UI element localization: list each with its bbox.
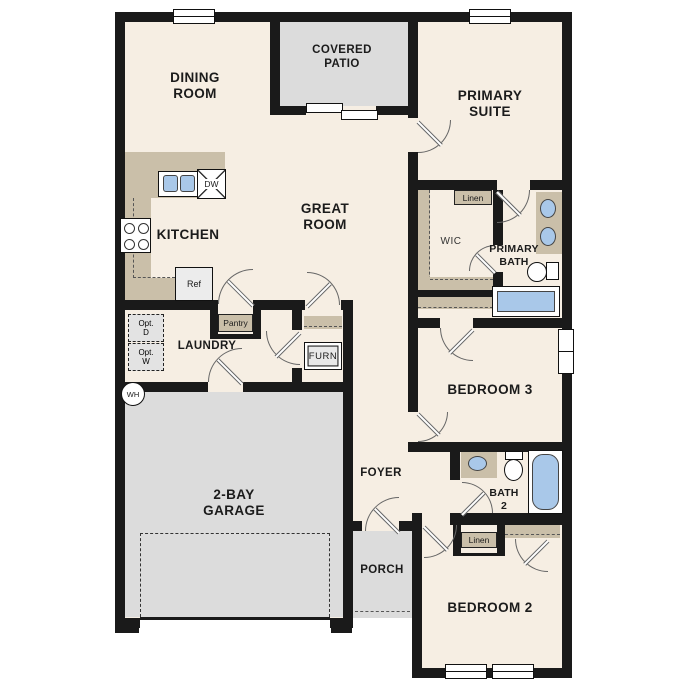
optional-washer-label: Opt.W [138,348,153,366]
window-bedroom2-right [492,664,534,679]
label-foyer: FOYER [346,467,416,481]
pantry-shelf: Pantry [218,314,253,332]
label-laundry: LAUNDRY [157,340,257,354]
wall-garage-right [343,382,353,628]
wall-pantry-bottom [210,334,261,339]
dishwasher: DW [197,169,226,199]
bedroom3-closet-dashed [418,307,493,308]
pantry-label: Pantry [223,318,248,328]
wall-hall-west [343,300,353,392]
label-garage: 2-BAYGARAGE [174,487,294,519]
counter-edge-dashed-h [133,277,175,278]
exterior-cutout-porch [353,618,412,678]
window-primary-suite [469,9,511,24]
wall-linen-hall-bottom [453,553,505,556]
wall-bedroom2-left [412,513,422,678]
wall-laundry-right-upper [292,300,302,330]
dishwasher-label: DW [203,179,219,189]
primary-sink-top [540,199,556,218]
label-primary-suite: PRIMARYSUITE [430,88,550,120]
label-porch: PORCH [347,564,417,578]
wall-patio-bottom-left [270,106,306,115]
linen-hall: Linen [461,532,497,548]
bedroom2-closet-dashed [505,534,560,535]
refrigerator: Ref [175,267,213,301]
bath2-sink [468,456,487,471]
optional-dryer: Opt.D [128,314,164,342]
wall-exterior-left [115,12,125,628]
linen-primary: Linen [454,190,492,205]
wall-foyer-bottom-right [399,521,412,531]
bath2-tub-basin [532,454,559,510]
wall-foyer-bottom-left [343,521,362,531]
wall-bath2-left [450,452,460,480]
furnace: FURN [304,342,342,370]
water-heater: WH [121,382,145,406]
bath2-toilet-bowl [504,459,523,481]
wall-garage-bottom-left [115,618,140,628]
wall-suite-bath-right [530,180,572,190]
kitchen-sink-basin-left [163,175,178,192]
window-bedroom2-left [445,664,487,679]
primary-tub-basin [497,291,555,312]
linen-hall-label: Linen [469,535,490,545]
bedroom2-closet-shelf [505,525,560,538]
furnace-closet-dashed [304,326,342,327]
optional-dryer-label: Opt.D [138,319,153,337]
stove-burner-icon [124,223,135,234]
wall-laundry-top [115,300,210,310]
wall-pantry-right [253,300,261,338]
linen-primary-label: Linen [463,193,484,203]
label-dining-room: DININGROOM [135,70,255,102]
floor-plan: DW Ref Linen Linen Pantry FURN Opt.D Opt… [0,0,687,687]
garage-door-gap [140,620,330,628]
wall-garage-top-right [243,382,353,392]
wall-wic-closet-divider [408,290,503,297]
garage-door-header [140,617,330,620]
label-great-room: GREATROOM [275,201,375,233]
kitchen-counter-bottom [125,278,175,300]
label-bath2: BATH2 [474,487,534,512]
wall-pantry-left [210,300,218,338]
wall-bedroom3-top-left [408,318,440,328]
wall-bedroom3-top-right [473,318,572,328]
label-primary-bath: PRIMARYBATH [479,243,549,268]
furnace-closet-shelf [304,316,342,329]
label-bedroom3: BEDROOM 3 [420,382,560,398]
furnace-label: FURN [309,351,337,362]
water-heater-label: WH [127,390,140,399]
wic-shelf-bottom-dashed [430,279,493,280]
porch-edge-dashed [355,611,410,612]
wall-patio-left [270,12,280,115]
label-covered-patio: COVEREDPATIO [292,44,392,72]
wall-suite-bath-left [408,180,497,190]
wall-hall-east-lower [408,152,418,412]
window-dining [173,9,215,24]
garage-door-pier-left [115,628,139,633]
label-bedroom2: BEDROOM 2 [420,600,560,616]
label-kitchen: KITCHEN [138,227,238,243]
wall-linen-hall-right [497,525,505,555]
exterior-cutout-left [115,628,353,678]
kitchen-sink-basin-right [180,175,195,192]
window-bedroom3 [558,329,574,374]
garage-door-dashed [140,533,330,617]
garage-door-pier-right [331,628,352,633]
wall-bath2-bottom [450,513,572,525]
patio-slider-panel-left [306,103,343,113]
label-wic: WIC [430,236,472,248]
stove-burner-icon [124,239,135,250]
patio-slider-panel-right [341,110,378,120]
wall-hall-east-upper [408,22,418,118]
refrigerator-label: Ref [187,279,201,289]
